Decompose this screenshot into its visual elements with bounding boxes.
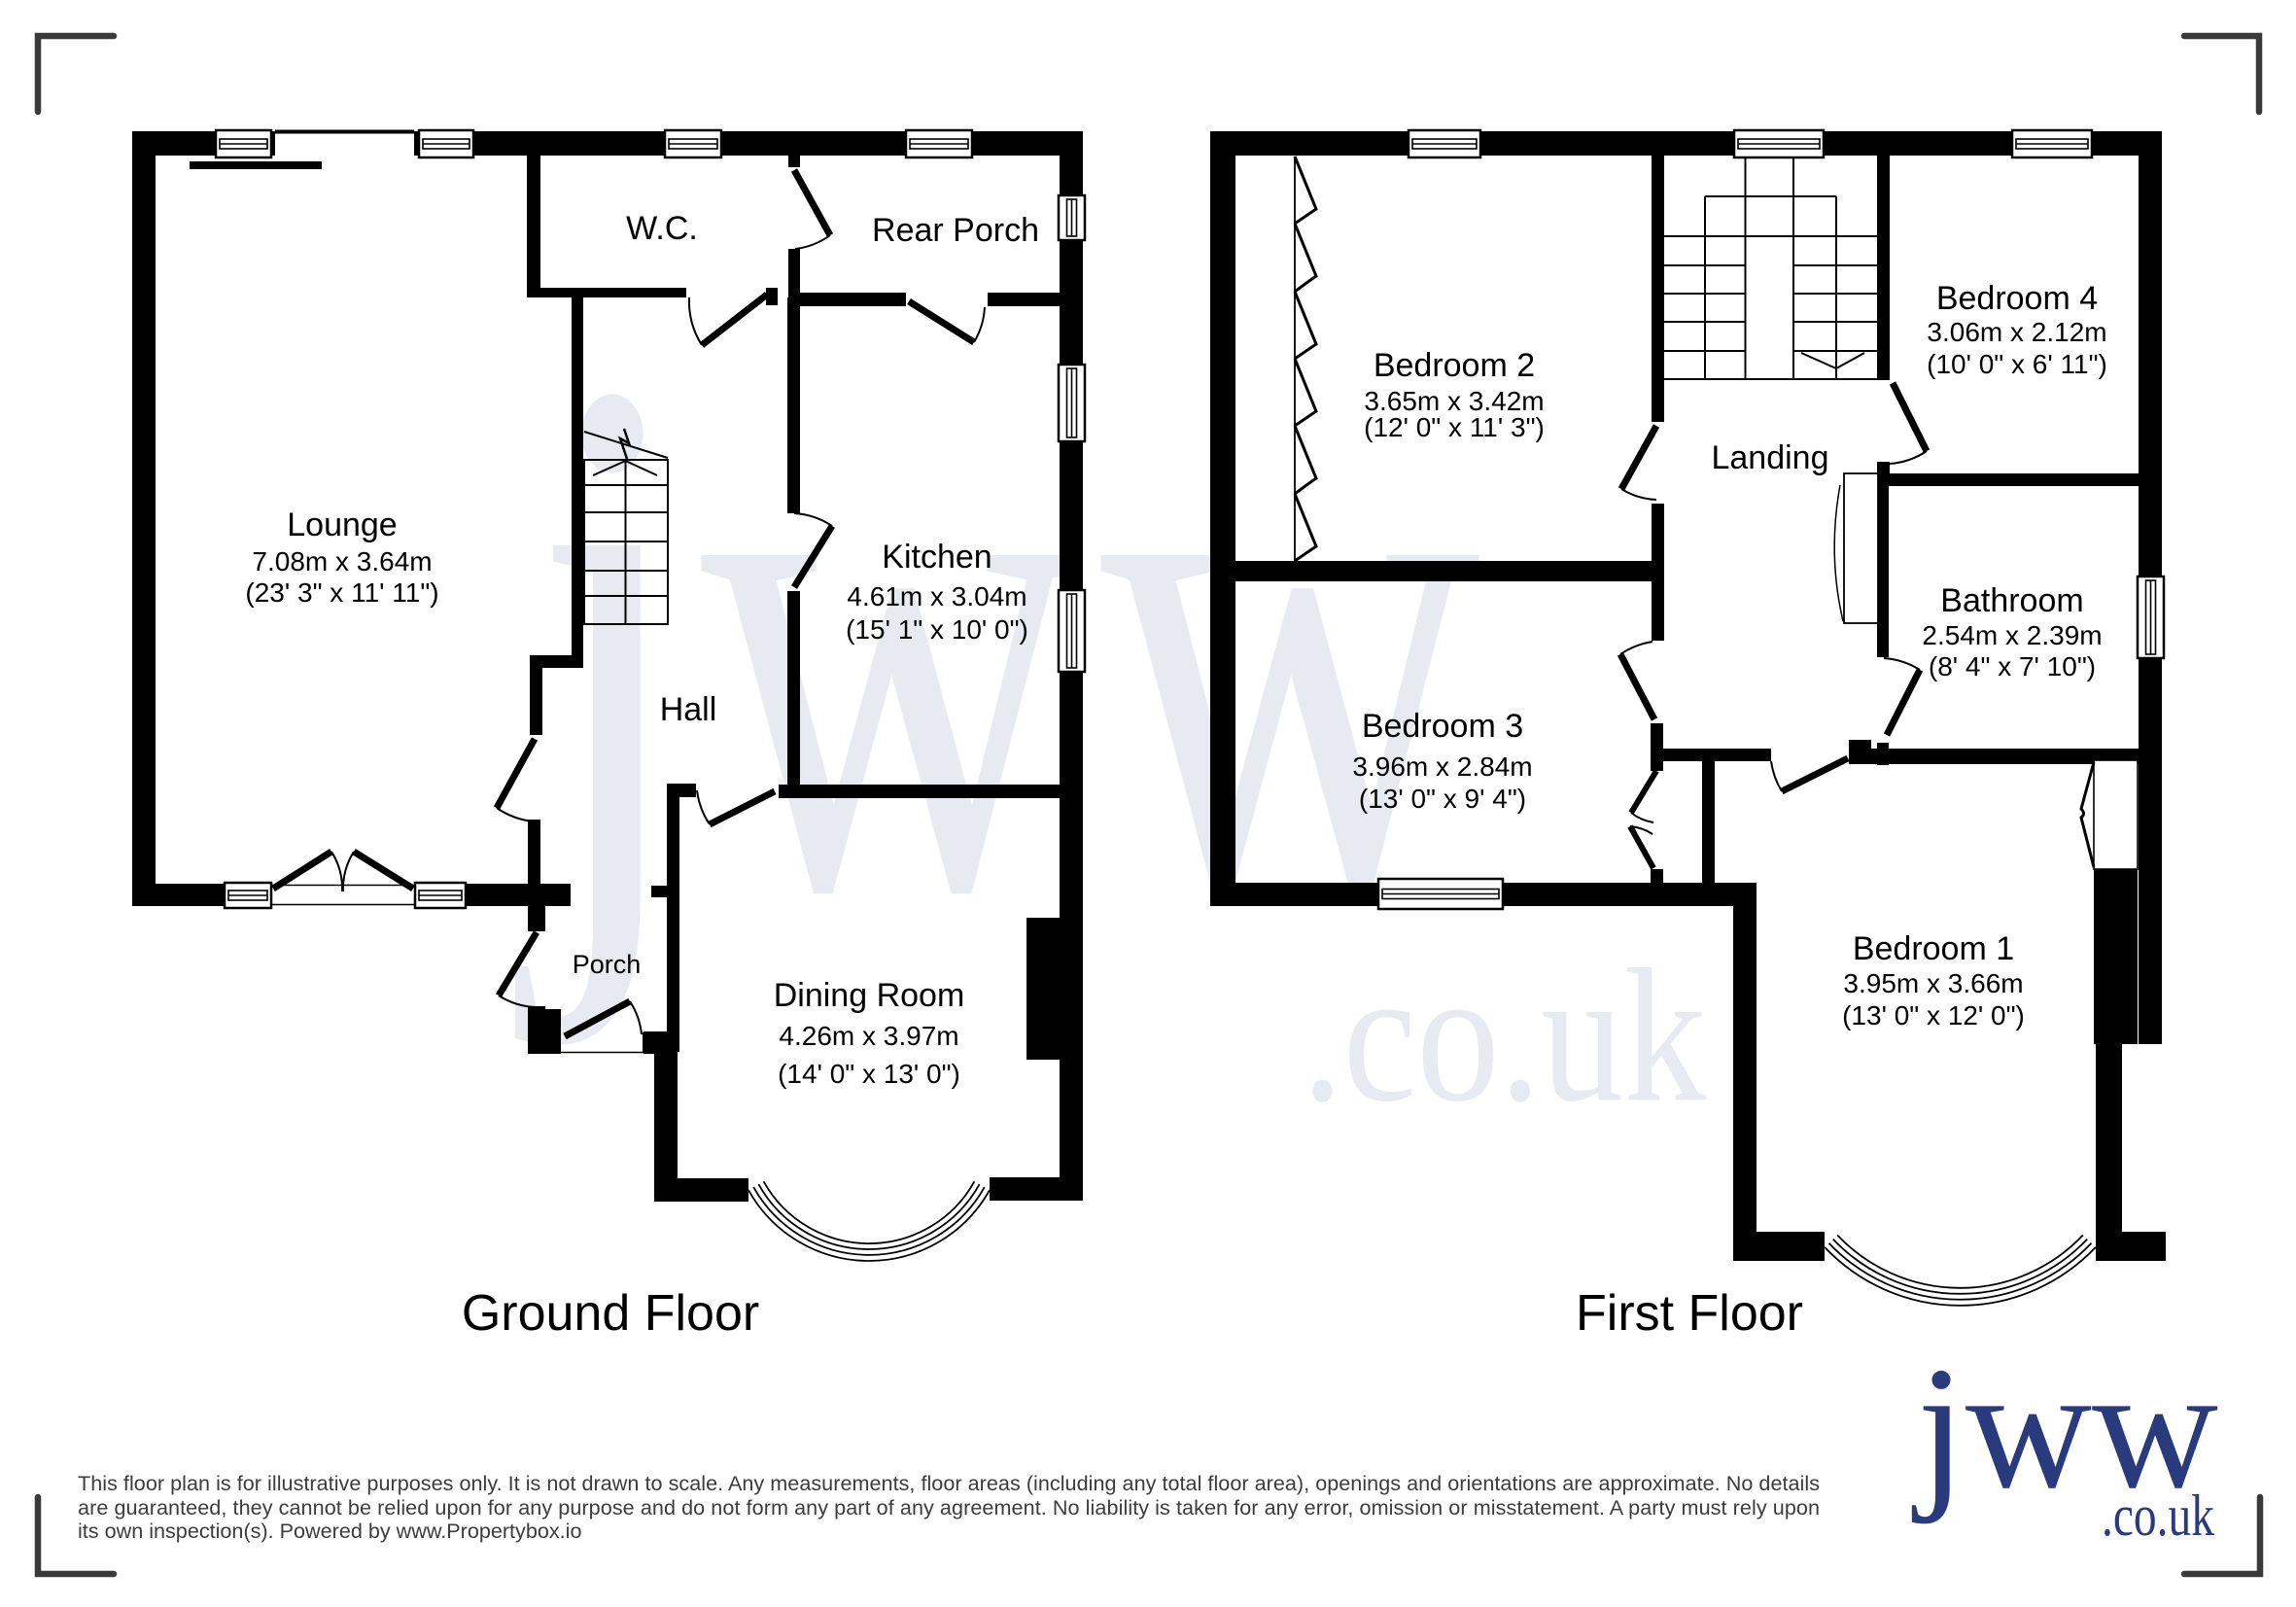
svg-text:First Floor: First Floor (1576, 1285, 1803, 1342)
svg-text:Porch: Porch (573, 950, 642, 979)
svg-text:(13' 0" x 9' 4"): (13' 0" x 9' 4") (1359, 784, 1526, 814)
svg-text:4.26m x 3.97m: 4.26m x 3.97m (779, 1021, 958, 1051)
svg-text:2.54m x 2.39m: 2.54m x 2.39m (1922, 620, 2102, 650)
svg-text:Ground Floor: Ground Floor (462, 1285, 759, 1342)
svg-text:Bedroom 3: Bedroom 3 (1362, 708, 1523, 745)
svg-text:(13' 0" x 12' 0"): (13' 0" x 12' 0") (1842, 1000, 2025, 1031)
svg-text:3.96m x 2.84m: 3.96m x 2.84m (1352, 751, 1532, 782)
svg-text:(12' 0" x 11' 3"): (12' 0" x 11' 3") (1364, 412, 1545, 442)
svg-text:its own inspection(s). Powered: its own inspection(s). Powered by www.Pr… (78, 1519, 581, 1543)
svg-text:Bedroom 1: Bedroom 1 (1853, 930, 2014, 967)
svg-text:7.08m x 3.64m: 7.08m x 3.64m (252, 546, 432, 576)
svg-text:(23' 3" x 11' 11"): (23' 3" x 11' 11") (245, 577, 438, 608)
svg-text:Kitchen: Kitchen (882, 539, 991, 576)
svg-text:Lounge: Lounge (287, 507, 397, 543)
svg-text:3.06m x 2.12m: 3.06m x 2.12m (1927, 317, 2106, 347)
svg-text:are guaranteed, they cannot be: are guaranteed, they cannot be relied up… (78, 1495, 1820, 1520)
svg-text:Landing: Landing (1711, 439, 1828, 476)
svg-text:Hall: Hall (660, 691, 717, 728)
svg-text:Rear Porch: Rear Porch (872, 212, 1039, 249)
svg-text:(14' 0" x 13' 0"): (14' 0" x 13' 0") (778, 1059, 960, 1089)
svg-text:Dining Room: Dining Room (774, 977, 965, 1014)
svg-text:.co.uk: .co.uk (1302, 929, 1707, 1141)
svg-text:(8' 4" x 7' 10"): (8' 4" x 7' 10") (1929, 651, 2096, 681)
svg-text:W.C.: W.C. (626, 210, 698, 247)
svg-text:(10' 0" x 6' 11"): (10' 0" x 6' 11") (1927, 349, 2107, 379)
svg-text:Bathroom: Bathroom (1940, 582, 2083, 619)
svg-text:This floor plan is for illustr: This floor plan is for illustrative purp… (78, 1471, 1820, 1495)
svg-text:3.95m x 3.66m: 3.95m x 3.66m (1843, 968, 2023, 998)
svg-text:4.61m x 3.04m: 4.61m x 3.04m (847, 581, 1026, 611)
svg-text:.co.uk: .co.uk (2102, 1484, 2214, 1548)
svg-text:Bedroom 2: Bedroom 2 (1374, 347, 1535, 384)
svg-text:(15' 1" x 10' 0"): (15' 1" x 10' 0") (846, 614, 1028, 645)
svg-text:Bedroom 4: Bedroom 4 (1936, 280, 2098, 317)
